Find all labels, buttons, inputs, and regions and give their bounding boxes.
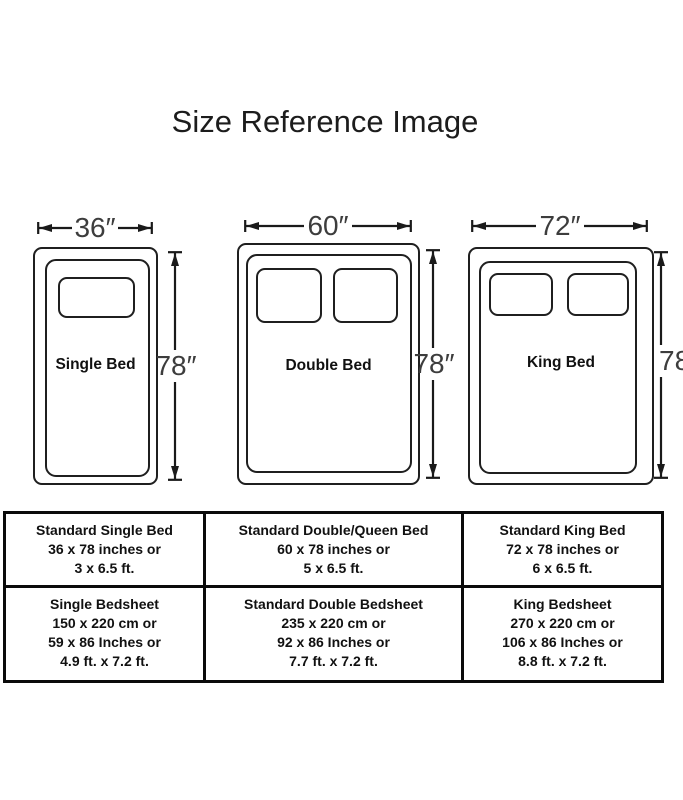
width-dimension-label: 60″ [307, 212, 348, 240]
bed-name-label: King Bed [468, 354, 654, 372]
cell-line: 36 x 78 inches or [8, 540, 201, 559]
size-table: Standard Single Bed 36 x 78 inches or 3 … [3, 511, 664, 683]
cell-line: Standard Single Bed [8, 521, 201, 540]
pillow-shape [489, 273, 553, 316]
table-cell-standard-king-bed: Standard King Bed 72 x 78 inches or 6 x … [463, 513, 663, 587]
cell-line: 60 x 78 inches or [208, 540, 459, 559]
cell-line: King Bedsheet [466, 595, 659, 614]
pillow-shape [333, 268, 398, 323]
cell-line: 4.9 ft. x 7.2 ft. [8, 652, 201, 671]
cell-line: 59 x 86 Inches or [8, 633, 201, 652]
cell-line: 235 x 220 cm or [208, 614, 459, 633]
table-cell-standard-double-bedsheet: Standard Double Bedsheet 235 x 220 cm or… [205, 587, 463, 682]
height-dimension-label: 78″ [659, 347, 683, 375]
width-dimension-label: 36″ [74, 214, 115, 242]
height-dimension-label: 78″ [413, 350, 454, 378]
cell-line: 92 x 86 Inches or [208, 633, 459, 652]
table-cell-king-bedsheet: King Bedsheet 270 x 220 cm or 106 x 86 I… [463, 587, 663, 682]
cell-line: 106 x 86 Inches or [466, 633, 659, 652]
cell-line: 270 x 220 cm or [466, 614, 659, 633]
table-cell-standard-single-bed: Standard Single Bed 36 x 78 inches or 3 … [5, 513, 205, 587]
cell-line: 6 x 6.5 ft. [466, 559, 659, 578]
cell-line: Single Bedsheet [8, 595, 201, 614]
cell-line: Standard Double Bedsheet [208, 595, 459, 614]
pillow-shape [256, 268, 322, 323]
bed-name-label: Double Bed [237, 357, 420, 375]
cell-line: 5 x 6.5 ft. [208, 559, 459, 578]
bed-name-label: Single Bed [33, 356, 158, 374]
size-reference-image: Size Reference Image 36″ Single Bed [0, 0, 683, 800]
width-dimension-label: 72″ [539, 212, 580, 240]
pillow-shape [58, 277, 135, 318]
pillow-shape [567, 273, 629, 316]
cell-line: 8.8 ft. x 7.2 ft. [466, 652, 659, 671]
cell-line: 3 x 6.5 ft. [8, 559, 201, 578]
cell-line: 150 x 220 cm or [8, 614, 201, 633]
table-cell-standard-double-queen-bed: Standard Double/Queen Bed 60 x 78 inches… [205, 513, 463, 587]
table-cell-single-bedsheet: Single Bedsheet 150 x 220 cm or 59 x 86 … [5, 587, 205, 682]
page-title: Size Reference Image [0, 104, 650, 140]
cell-line: Standard King Bed [466, 521, 659, 540]
table-row: Single Bedsheet 150 x 220 cm or 59 x 86 … [5, 587, 663, 682]
table-row: Standard Single Bed 36 x 78 inches or 3 … [5, 513, 663, 587]
cell-line: Standard Double/Queen Bed [208, 521, 459, 540]
cell-line: 72 x 78 inches or [466, 540, 659, 559]
height-dimension-label: 78″ [155, 352, 196, 380]
cell-line: 7.7 ft. x 7.2 ft. [208, 652, 459, 671]
